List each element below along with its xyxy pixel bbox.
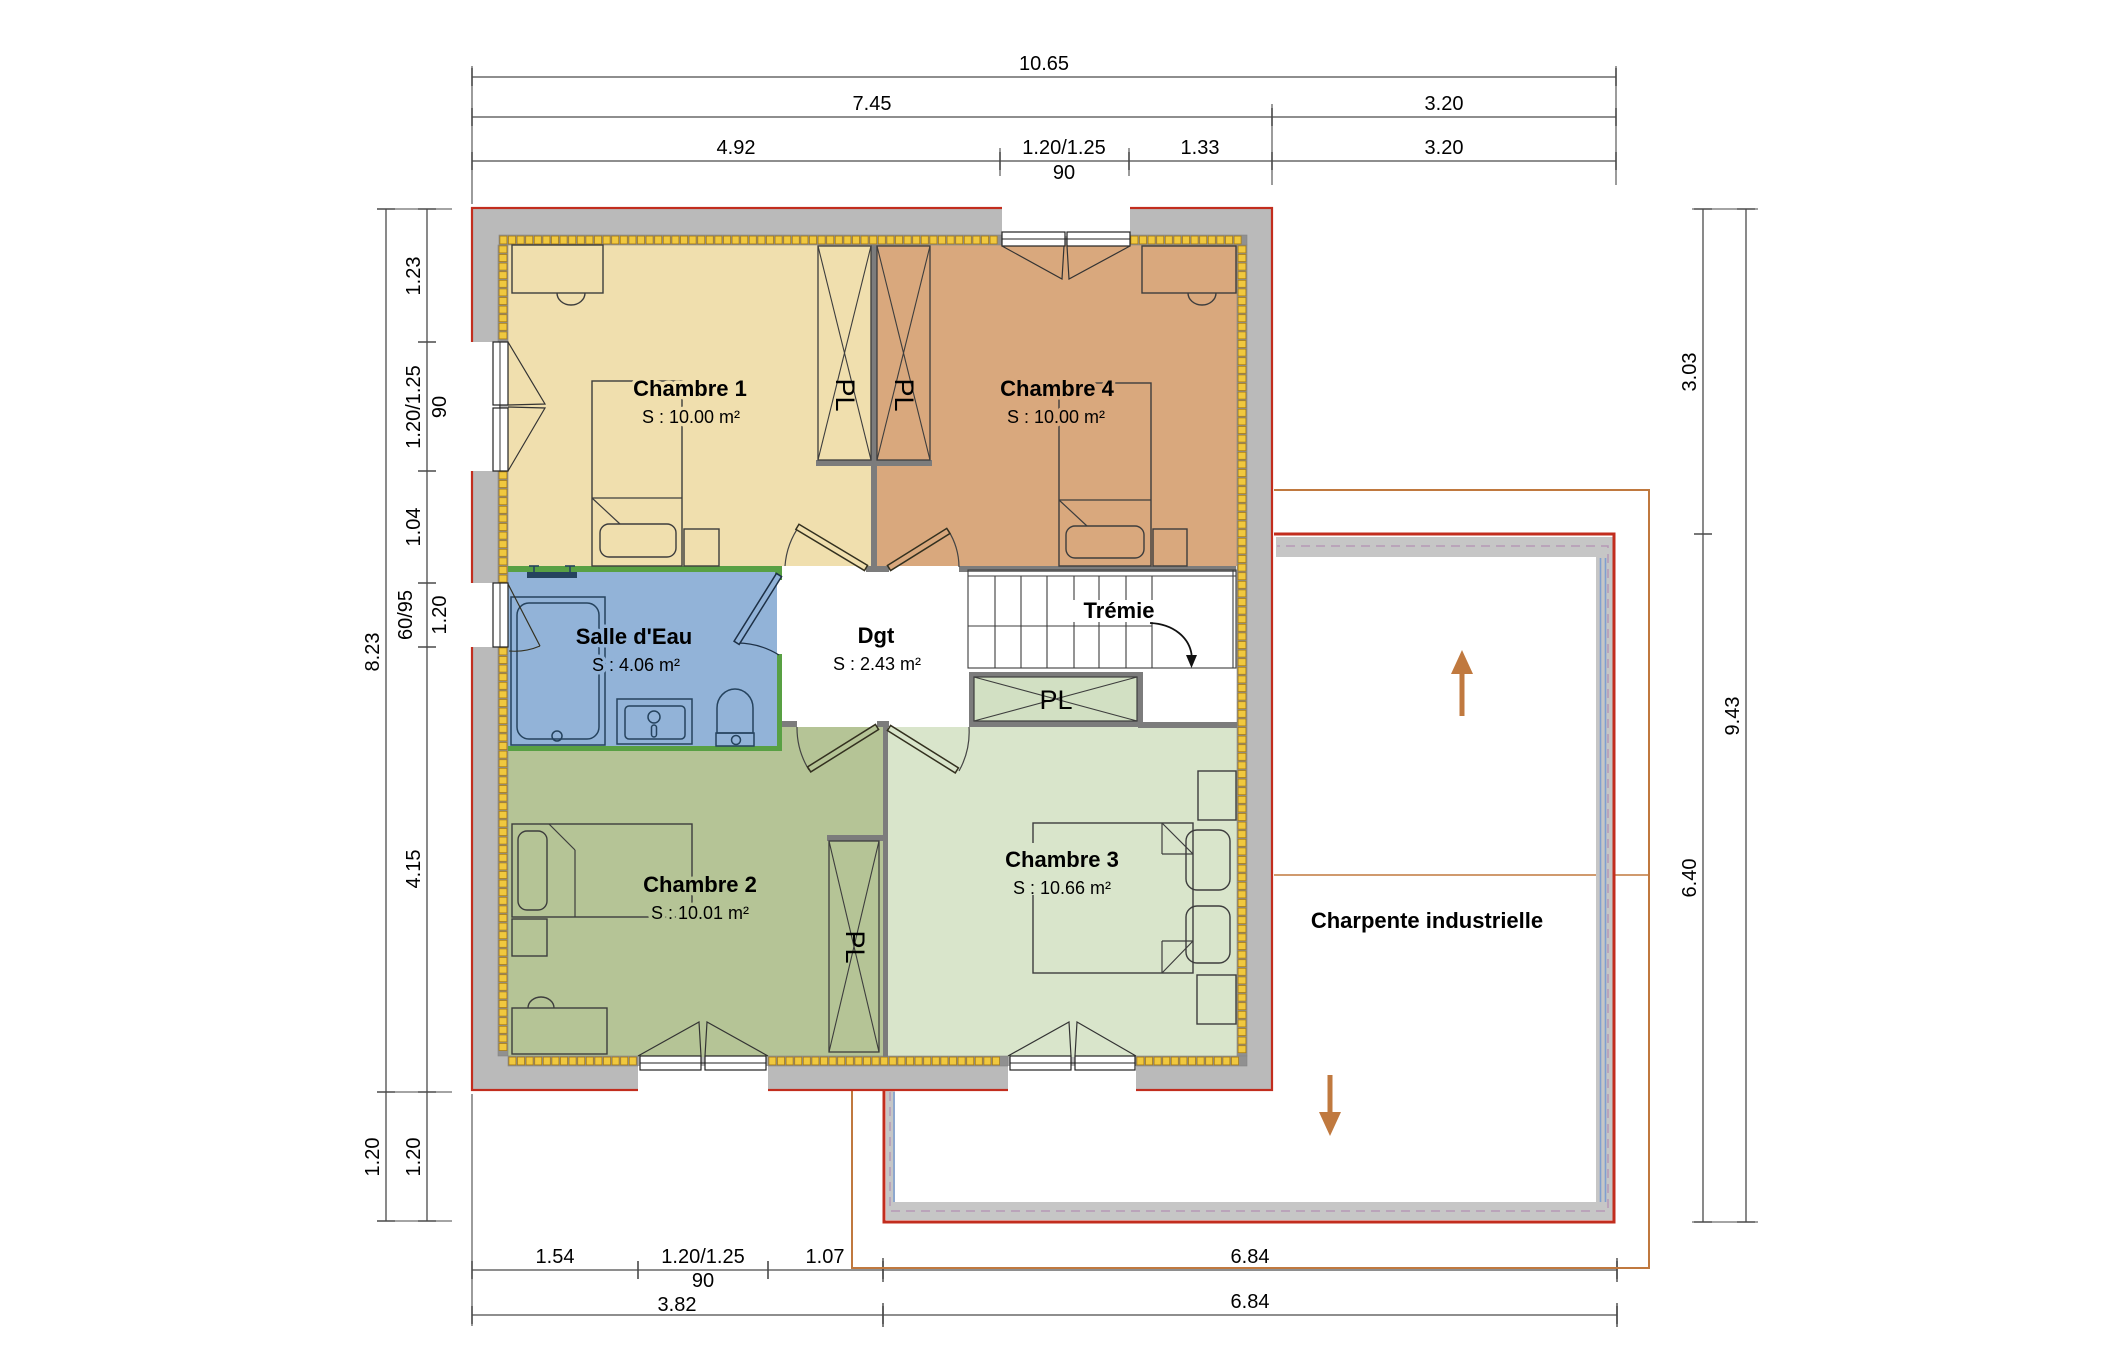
svg-text:Chambre 2: Chambre 2	[643, 872, 757, 897]
svg-text:S : 10.66 m²: S : 10.66 m²	[1013, 878, 1111, 898]
svg-text:PL: PL	[889, 378, 919, 411]
svg-text:9.43: 9.43	[1722, 697, 1744, 736]
svg-text:8.23: 8.23	[362, 633, 384, 672]
svg-text:1.20: 1.20	[362, 1138, 384, 1177]
svg-text:Salle d'Eau: Salle d'Eau	[576, 624, 693, 649]
svg-text:3.03: 3.03	[1679, 353, 1701, 392]
svg-text:PL: PL	[840, 930, 870, 963]
svg-text:3.20: 3.20	[1425, 93, 1464, 115]
svg-text:60/95: 60/95	[395, 590, 417, 640]
svg-text:3.82: 3.82	[658, 1294, 697, 1316]
svg-text:10.65: 10.65	[1019, 53, 1069, 75]
svg-text:Charpente industrielle: Charpente industrielle	[1311, 908, 1543, 933]
svg-text:1.33: 1.33	[1181, 137, 1220, 159]
svg-text:1.23: 1.23	[403, 257, 425, 296]
svg-text:1.20/1.25: 1.20/1.25	[661, 1246, 744, 1268]
svg-text:PL: PL	[1039, 685, 1072, 715]
svg-text:7.45: 7.45	[853, 93, 892, 115]
svg-text:6.84: 6.84	[1231, 1291, 1270, 1313]
svg-text:Chambre 1: Chambre 1	[633, 376, 747, 401]
svg-text:PL: PL	[830, 378, 860, 411]
svg-text:6.40: 6.40	[1679, 859, 1701, 898]
svg-text:S : 10.00 m²: S : 10.00 m²	[1007, 407, 1105, 427]
svg-text:1.20: 1.20	[429, 596, 451, 635]
svg-text:1.20: 1.20	[403, 1138, 425, 1177]
svg-text:Trémie: Trémie	[1084, 598, 1155, 623]
svg-text:Dgt: Dgt	[858, 623, 895, 648]
svg-text:1.54: 1.54	[536, 1246, 575, 1268]
svg-text:Chambre 4: Chambre 4	[1000, 376, 1114, 401]
svg-text:1.20/1.25: 1.20/1.25	[403, 365, 425, 448]
svg-text:90: 90	[429, 396, 451, 418]
svg-text:1.07: 1.07	[806, 1246, 845, 1268]
svg-text:90: 90	[692, 1270, 714, 1292]
svg-text:1.20/1.25: 1.20/1.25	[1022, 137, 1105, 159]
svg-text:1.04: 1.04	[403, 508, 425, 547]
svg-text:4.15: 4.15	[403, 850, 425, 889]
svg-text:3.20: 3.20	[1425, 137, 1464, 159]
svg-text:6.84: 6.84	[1231, 1246, 1270, 1268]
svg-text:Chambre 3: Chambre 3	[1005, 847, 1119, 872]
svg-text:S : 10.00 m²: S : 10.00 m²	[642, 407, 740, 427]
svg-text:4.92: 4.92	[717, 137, 756, 159]
svg-text:S : 10.01 m²: S : 10.01 m²	[651, 903, 749, 923]
svg-text:S : 4.06 m²: S : 4.06 m²	[592, 655, 680, 675]
svg-text:90: 90	[1053, 162, 1075, 184]
svg-text:S : 2.43 m²: S : 2.43 m²	[833, 654, 921, 674]
